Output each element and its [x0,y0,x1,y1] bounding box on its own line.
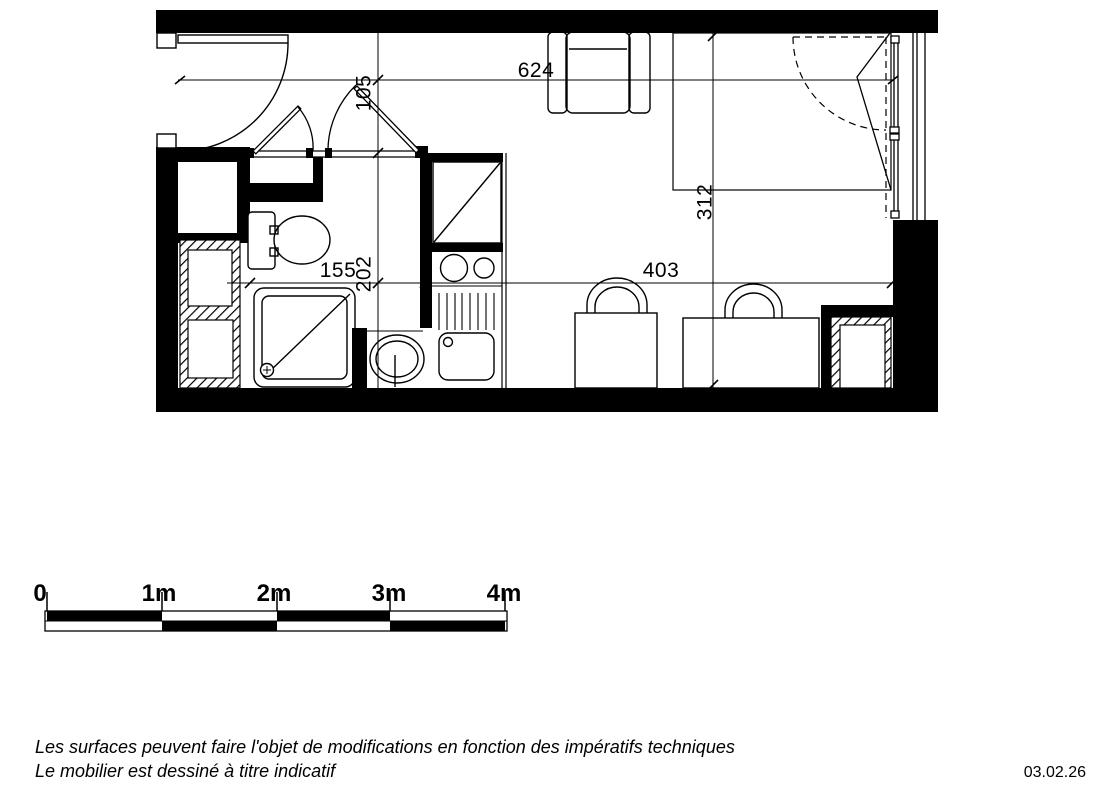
window-frame-block [891,211,899,218]
toilet-tank [248,212,275,269]
door-jamb [157,33,176,48]
kitchen-top-bar [432,153,503,162]
kitchen-mid-bar [432,243,503,252]
niche-bottom-wall [250,183,323,202]
window-handle [890,127,899,133]
footer-note-line2: Le mobilier est dessiné à titre indicati… [35,761,337,781]
floor-plan-drawing: 624 105 202 155 312 403 0 1m 2m 3m 4m [0,0,1096,800]
entrance-door-leaf [178,35,288,43]
corner-closet-left-wall [821,305,831,388]
dim-label-624: 624 [518,59,555,82]
window-handle [890,134,899,140]
left-wall [156,148,178,412]
dim-label-403: 403 [643,259,680,282]
footer-note-line1: Les surfaces peuvent faire l'objet de mo… [35,737,735,757]
left-duct-lower-cavity [188,320,233,378]
dim-label-312: 312 [694,184,717,221]
bottom-wall [156,388,938,412]
scale-label-0: 0 [33,580,46,607]
bath-kitchen-wall [420,153,432,328]
left-duct-upper-cavity [188,250,232,306]
scale-label-3m: 3m [372,580,407,607]
floor-plan-page: 624 105 202 155 312 403 0 1m 2m 3m 4m [0,0,1096,800]
dim-label-105: 105 [353,75,376,112]
scale-label-2m: 2m [257,580,292,607]
top-wall [156,10,938,33]
scale-label-4m: 4m [487,580,522,607]
corner-closet-top-wall [821,305,893,317]
corner-duct-cavity [840,325,885,388]
dim-label-155: 155 [320,259,357,282]
niche-right-wall [313,157,323,187]
toilet-bowl [274,216,330,264]
right-wall [893,220,938,412]
scale-label-1m: 1m [142,580,177,607]
door-jamb [157,134,176,148]
plan-date: 03.02.26 [1024,764,1086,781]
window-frame-block [891,36,899,43]
